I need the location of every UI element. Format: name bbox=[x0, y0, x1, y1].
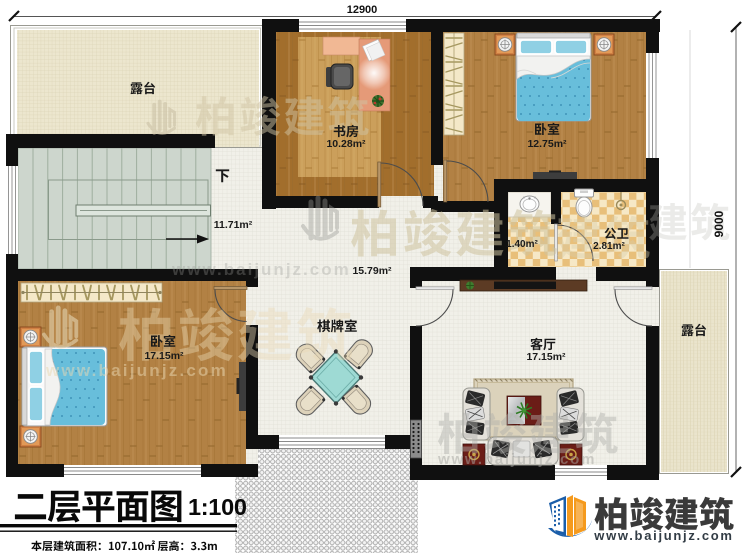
svg-text:17.15m²: 17.15m² bbox=[526, 351, 566, 363]
svg-text:www.baijunjz.com: www.baijunjz.com bbox=[437, 451, 596, 468]
svg-text:17.15m²: 17.15m² bbox=[144, 350, 184, 362]
svg-text:10.28m²: 10.28m² bbox=[326, 138, 366, 150]
svg-text:9000: 9000 bbox=[712, 210, 726, 237]
svg-text:11.71m²: 11.71m² bbox=[214, 219, 253, 231]
svg-text:www.baijunjz.com: www.baijunjz.com bbox=[593, 528, 733, 543]
svg-text:www.baijunjz.com: www.baijunjz.com bbox=[171, 260, 351, 279]
svg-text:1:100: 1:100 bbox=[188, 494, 247, 520]
svg-text:www.baijunjz.com: www.baijunjz.com bbox=[45, 361, 228, 380]
svg-text:12900: 12900 bbox=[347, 4, 378, 16]
svg-text:1.40m²: 1.40m² bbox=[506, 239, 538, 250]
svg-text:15.79m²: 15.79m² bbox=[352, 265, 392, 277]
svg-text:2.81m²: 2.81m² bbox=[593, 241, 625, 252]
svg-text:12.75m²: 12.75m² bbox=[527, 138, 567, 150]
